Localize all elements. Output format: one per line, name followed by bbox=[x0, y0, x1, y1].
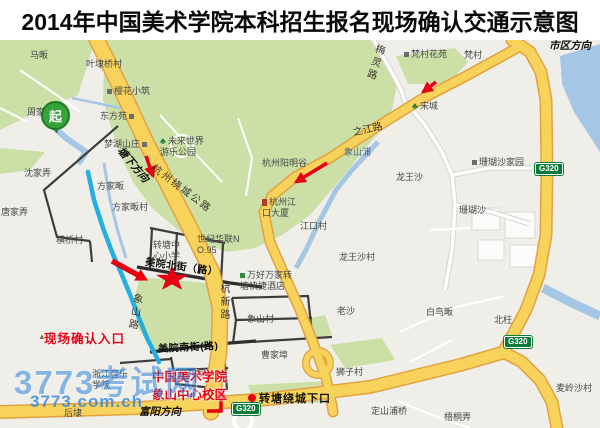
label-fuyangfangxiang: 富阳方向 bbox=[139, 406, 181, 419]
label-fancun: 梵村 bbox=[464, 50, 482, 61]
label-longwangshacun: 龙王沙村 bbox=[339, 252, 375, 263]
square-marker-icon bbox=[107, 89, 112, 94]
square-marker-icon bbox=[129, 114, 134, 119]
label-songcheng: ♣宋城 bbox=[412, 101, 438, 112]
trees-icon: ♣ bbox=[412, 102, 418, 111]
label-fangjiafancun: 方家畈村 bbox=[112, 202, 148, 213]
label-shanhusha: 珊瑚沙 bbox=[459, 205, 486, 216]
label-shizicun: 狮子村 bbox=[336, 367, 363, 378]
square-marker-icon bbox=[404, 52, 409, 57]
watermark-url: 3773.com.ch bbox=[30, 392, 143, 412]
label-shenjialong: 沈家弄 bbox=[24, 168, 51, 179]
entrance-arrow-icon bbox=[112, 261, 138, 275]
label-dongfangyuan: 东方苑 bbox=[100, 111, 134, 122]
map-screenshot: 2014年中国美术学院本科招生报名现场确认交通示意图 bbox=[0, 0, 600, 428]
route-shield-g320: G320 bbox=[504, 336, 532, 348]
label-hangxinlu: 杭新路 bbox=[217, 283, 229, 322]
label-mafan: 马畈 bbox=[30, 50, 48, 61]
exit-dot-icon bbox=[248, 394, 256, 402]
label-caojiabu: 曹家埠 bbox=[261, 350, 288, 361]
label-shanhushajiayuan: 珊瑚沙家园 bbox=[472, 157, 524, 168]
green-areas bbox=[0, 40, 468, 405]
label-fancunhuayuan: 梵村花苑 bbox=[404, 49, 447, 60]
label-dingshanpuqiao: 定山浦桥 bbox=[371, 406, 407, 417]
label-yinghuaxiaozhu: 樱花小筑 bbox=[107, 86, 150, 97]
route-shield-g320: G320 bbox=[535, 163, 563, 175]
label-longwangsha: 龙王沙 bbox=[396, 172, 423, 183]
label-bainiaofan: 白鸟畈 bbox=[426, 307, 453, 318]
trees-icon: ♣ bbox=[160, 137, 166, 146]
label-jiangkoucun: 江口村 bbox=[300, 221, 327, 232]
label-shijihualian: 世纪华联N O.95 bbox=[197, 234, 240, 256]
label-xiangshancun: 象山村 bbox=[247, 314, 274, 325]
entrance-label: 现场确认入口 bbox=[44, 328, 125, 347]
start-marker: 起 bbox=[41, 101, 70, 130]
label-wanhaowanjia: 万好万家转 塘快捷酒店 bbox=[240, 270, 292, 292]
label-weilaishijie: ♣未来世界 游乐公园 bbox=[160, 136, 204, 158]
page-title: 2014年中国美术学院本科招生报名现场确认交通示意图 bbox=[21, 3, 578, 37]
park-marker-icon bbox=[240, 273, 245, 278]
title-bar: 2014年中国美术学院本科招生报名现场确认交通示意图 bbox=[0, 0, 600, 40]
label-yangminggu: 杭州阳明谷 bbox=[262, 158, 307, 169]
square-marker-icon bbox=[472, 160, 477, 165]
label-laosha: 老沙 bbox=[337, 306, 355, 317]
label-mailingshacun: 麦岭沙村 bbox=[556, 383, 592, 394]
label-tangjialong: 唐家弄 bbox=[1, 207, 28, 218]
label-yedaiqiaocun: 叶埭桥村 bbox=[86, 59, 122, 70]
label-jiangkoudasha: 杭州江 口大厦 bbox=[262, 197, 296, 219]
label-fangjiafan: 方家畈 bbox=[97, 181, 124, 192]
square-marker-icon bbox=[142, 142, 147, 147]
building-marker-icon bbox=[262, 199, 267, 206]
label-wutonglong: 梧桐弄 bbox=[444, 412, 471, 423]
label-shiqufangxiang: 市区方向 bbox=[549, 40, 591, 53]
label-xiangshanpu: 象山浦 bbox=[344, 147, 371, 158]
label-hengqiaocun: 横桥村 bbox=[56, 235, 83, 246]
label-beiwang: 北枉 bbox=[494, 315, 512, 326]
route-shield-g320: G320 bbox=[232, 403, 260, 415]
label-zhuantangxiakou: 转塘绕城下口 bbox=[259, 393, 331, 406]
